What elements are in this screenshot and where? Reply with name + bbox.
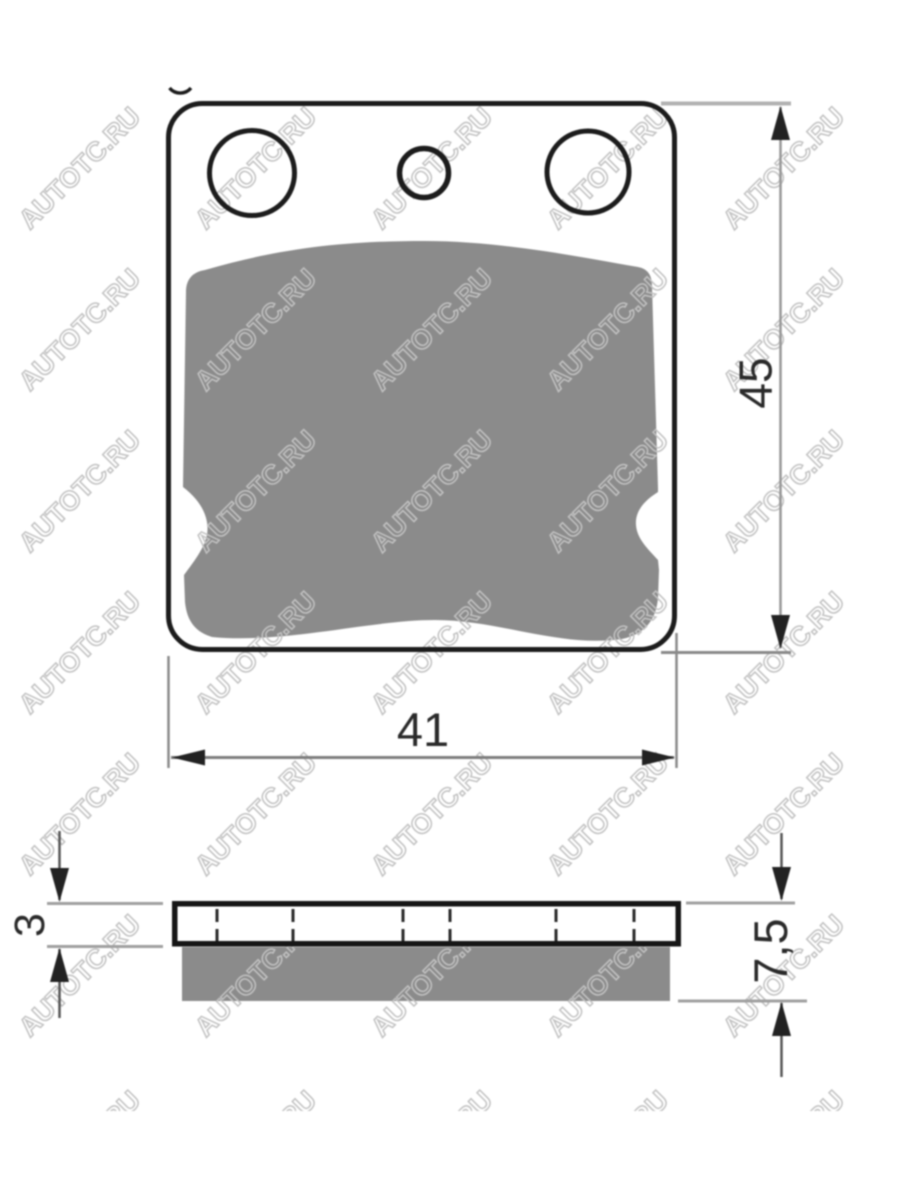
svg-text:3: 3 xyxy=(6,913,54,937)
svg-text:45: 45 xyxy=(730,357,782,408)
svg-text:7,5: 7,5 xyxy=(744,918,797,983)
svg-text:41: 41 xyxy=(397,703,449,756)
